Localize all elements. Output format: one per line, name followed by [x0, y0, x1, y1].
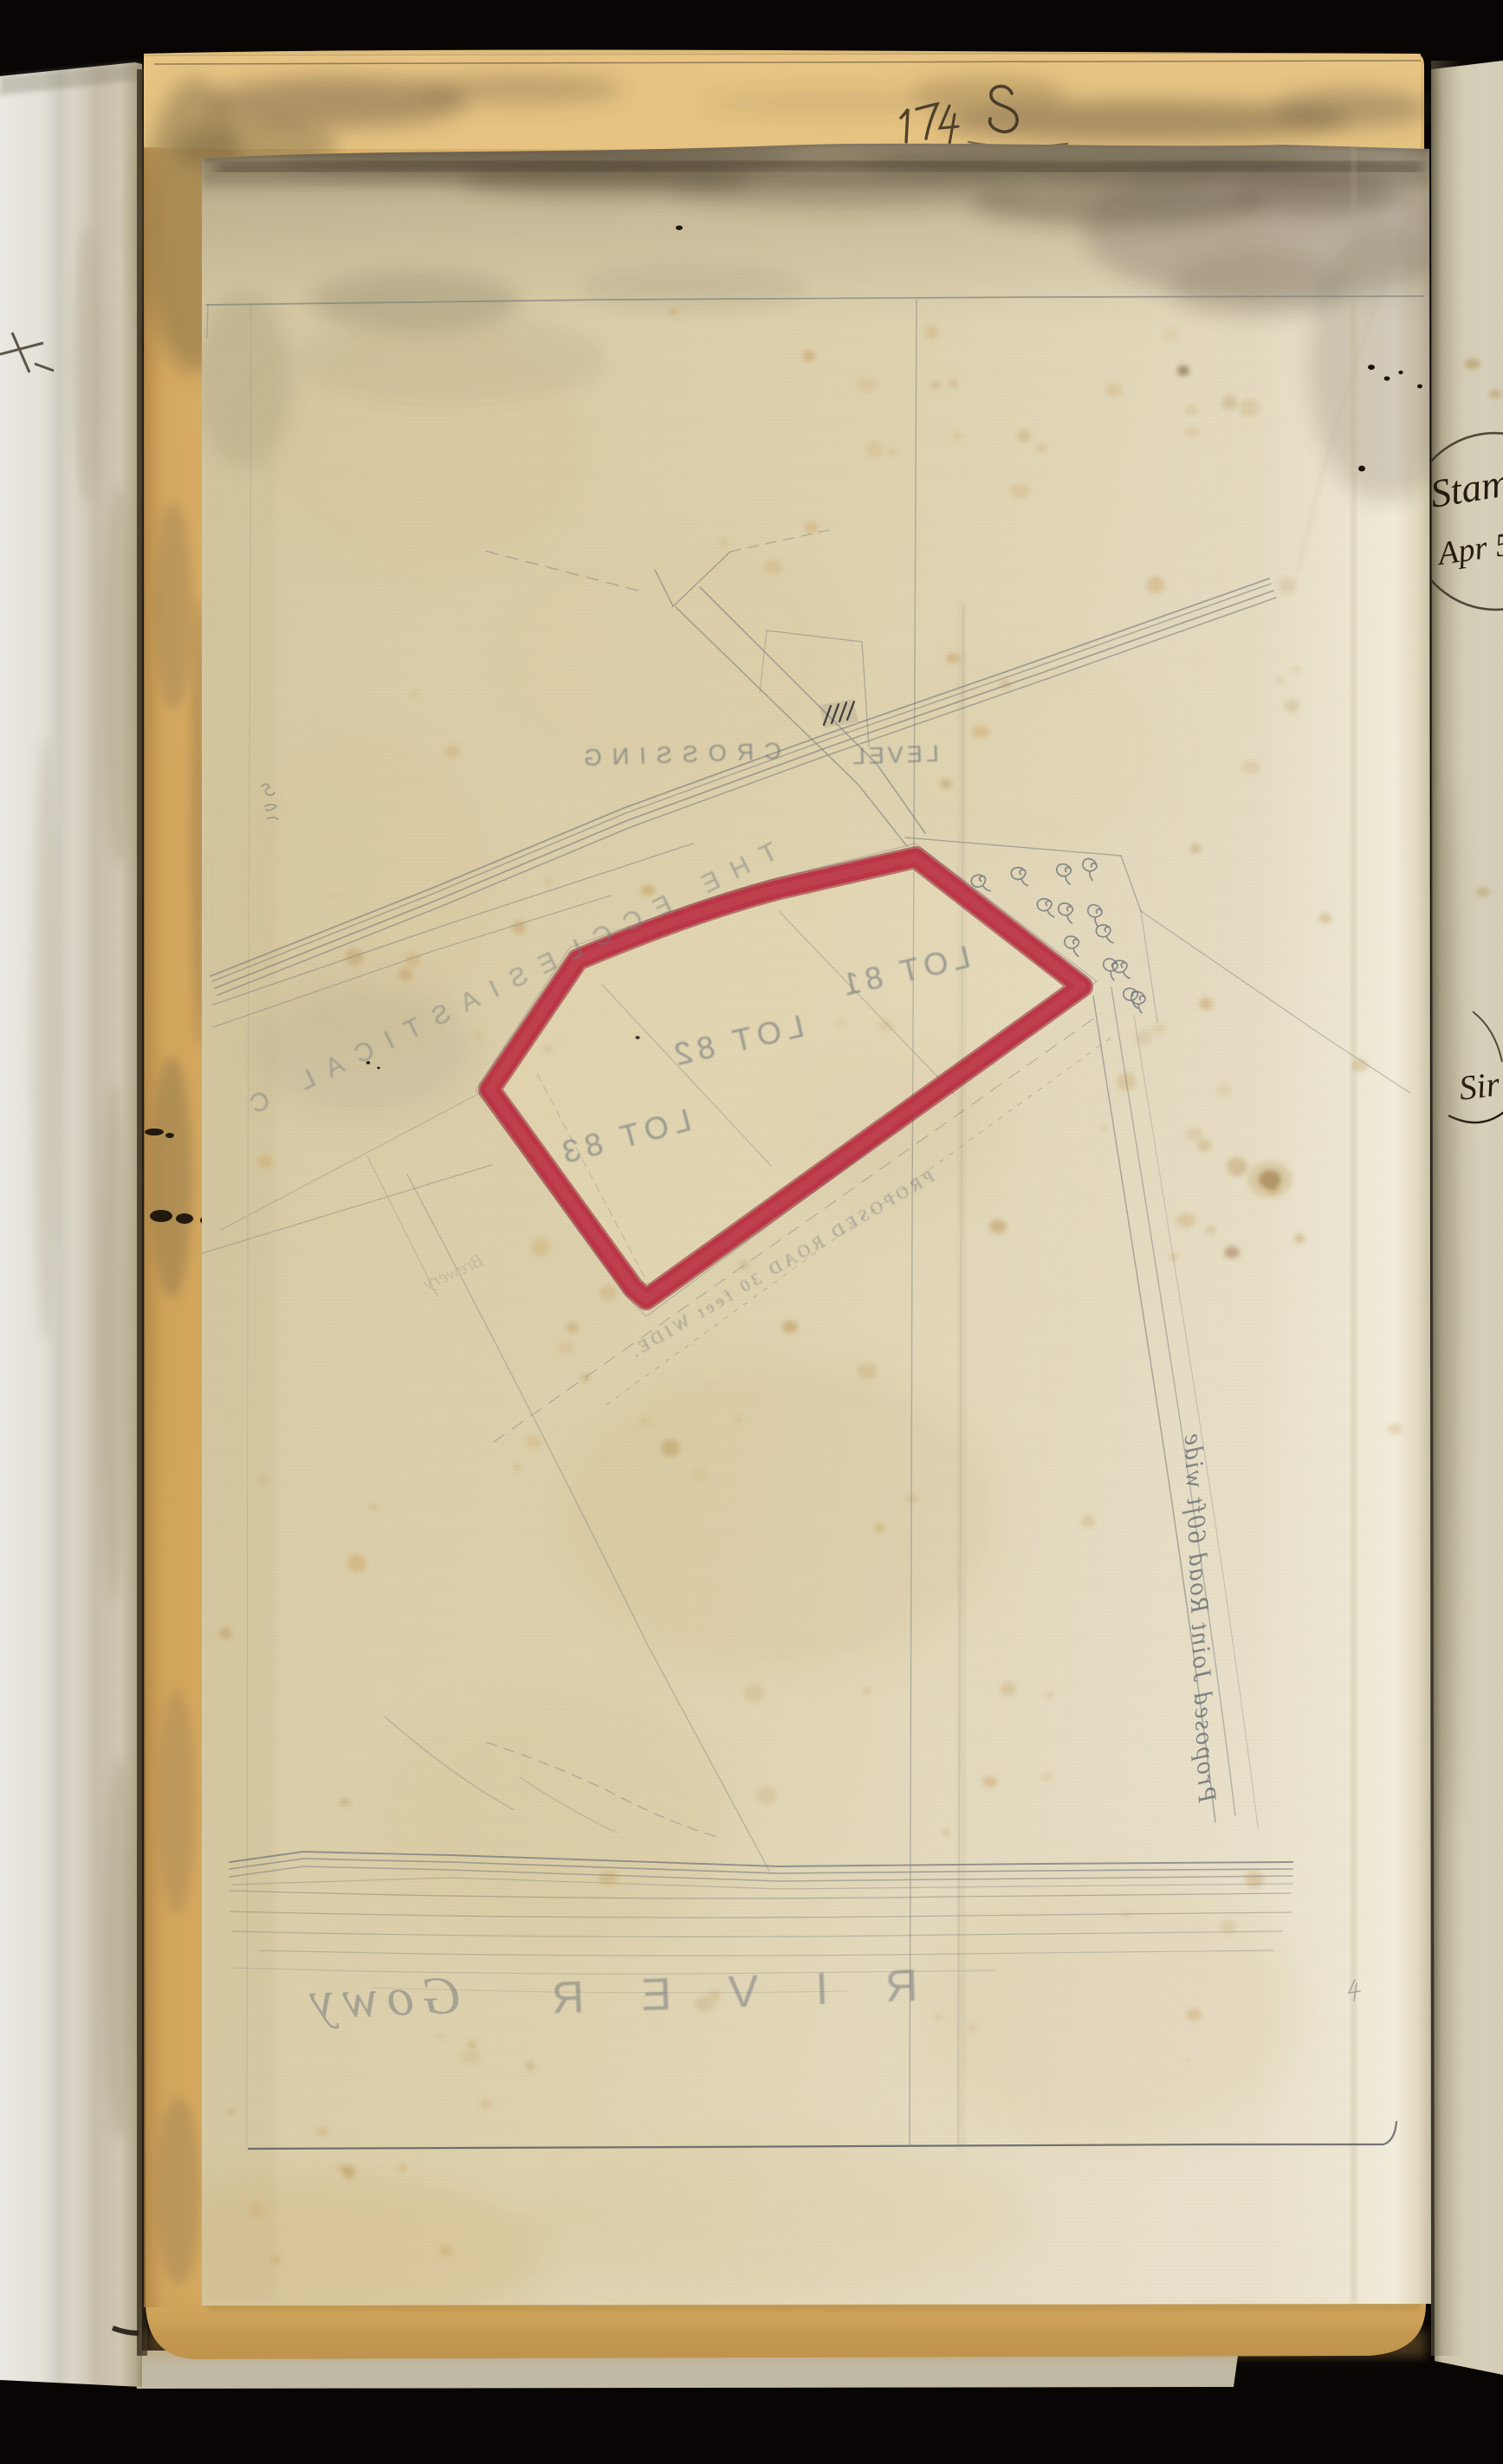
- svg-text:Gowy: Gowy: [301, 1966, 463, 2030]
- svg-text:LEVEL: LEVEL: [848, 740, 939, 770]
- svg-text:Sir: Sir: [1457, 1064, 1502, 1108]
